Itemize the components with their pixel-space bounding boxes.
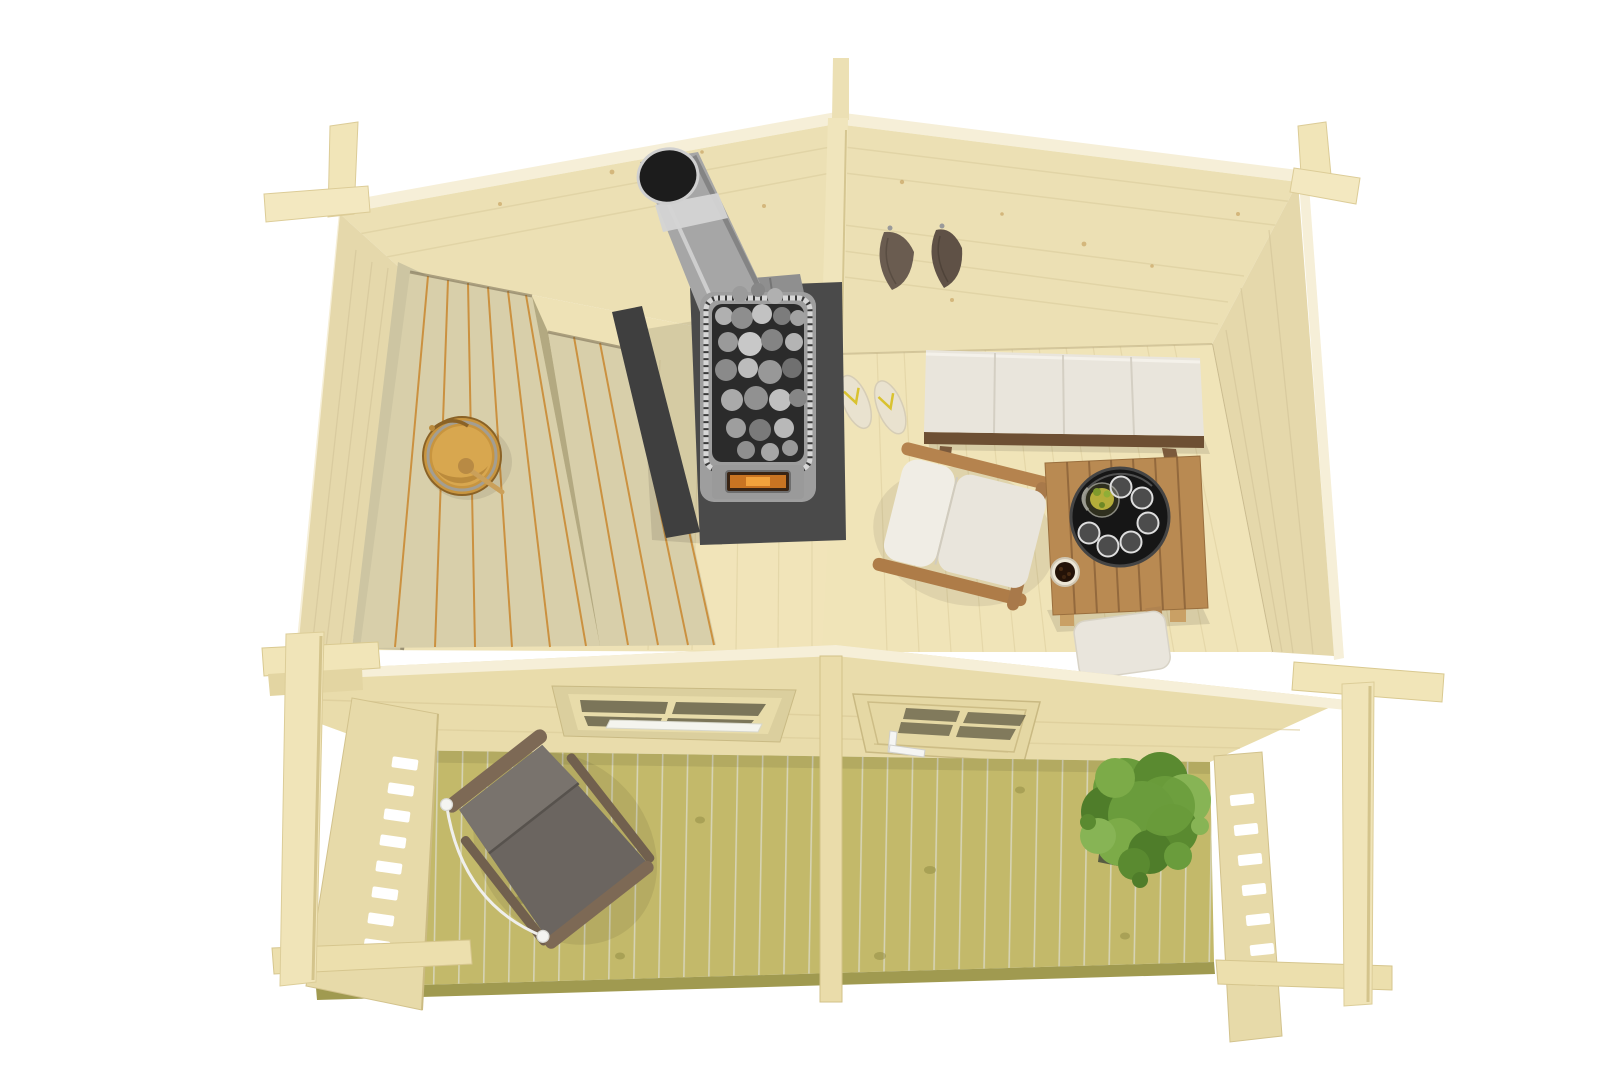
glass — [1098, 536, 1119, 557]
garnish — [1093, 488, 1101, 496]
center-post — [820, 656, 842, 1002]
stool-cushion — [1073, 610, 1172, 680]
glass — [1121, 532, 1142, 553]
render-canvas — [0, 0, 1600, 1067]
sauna-cabin-render — [0, 0, 1600, 1067]
towel-hook — [940, 224, 945, 229]
glass — [1111, 477, 1132, 498]
glass — [1138, 513, 1159, 534]
front-door — [853, 694, 1040, 762]
window-pane — [580, 700, 668, 714]
window-pane — [672, 702, 766, 716]
daybed-sofa — [924, 350, 1210, 468]
towel-hook — [888, 226, 893, 231]
front-window — [552, 686, 796, 742]
glass — [1132, 488, 1153, 509]
ridge-stub — [832, 58, 849, 120]
ladle-bowl — [458, 458, 474, 474]
glass — [1079, 523, 1100, 544]
coffee-table — [1045, 456, 1210, 632]
